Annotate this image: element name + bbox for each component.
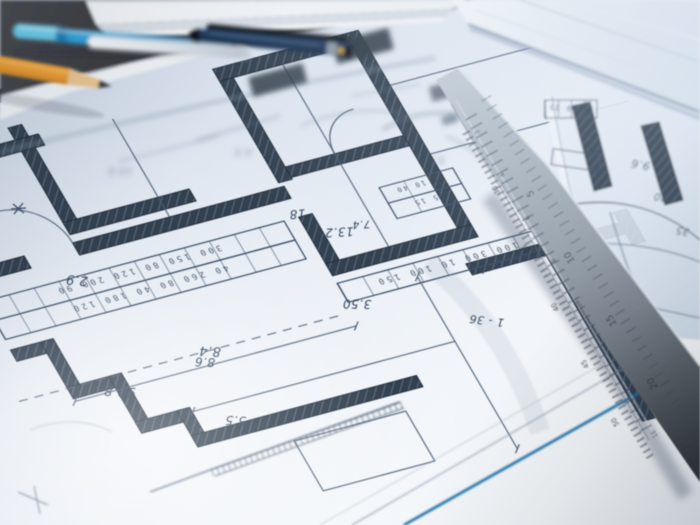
dimension-label: 26 (592, 162, 607, 175)
dimension-label: 20 (653, 190, 668, 203)
blueprint-desk-photo: 300 150 80 120 200 90 40 260 80 40 180 1… (0, 0, 700, 525)
dimension-label: 12.0 (108, 165, 133, 177)
dimension-label: 7.4 (352, 218, 371, 231)
dimension-label: 8.6 (194, 354, 215, 369)
dimension-label: 90.8 (103, 382, 136, 400)
dimension-label: 0.54 (421, 154, 445, 166)
dimension-label: 18 (289, 206, 306, 221)
dimension-label: 4.5 (234, 146, 251, 157)
dimension-label: 45 (583, 144, 600, 159)
dimension-label: 13.2 (325, 224, 354, 239)
dimension-label: 2.9 (65, 271, 88, 288)
pencil-end-cap (344, 45, 352, 58)
photo-canvas: 300 150 80 120 200 90 40 260 80 40 180 1… (0, 0, 700, 525)
dimension-label: 35 (675, 224, 690, 237)
dimension-label: 7 - 5.5 (225, 413, 270, 430)
pencil-metal-ring (326, 42, 337, 56)
dimension-label: 3.50 (342, 297, 371, 311)
